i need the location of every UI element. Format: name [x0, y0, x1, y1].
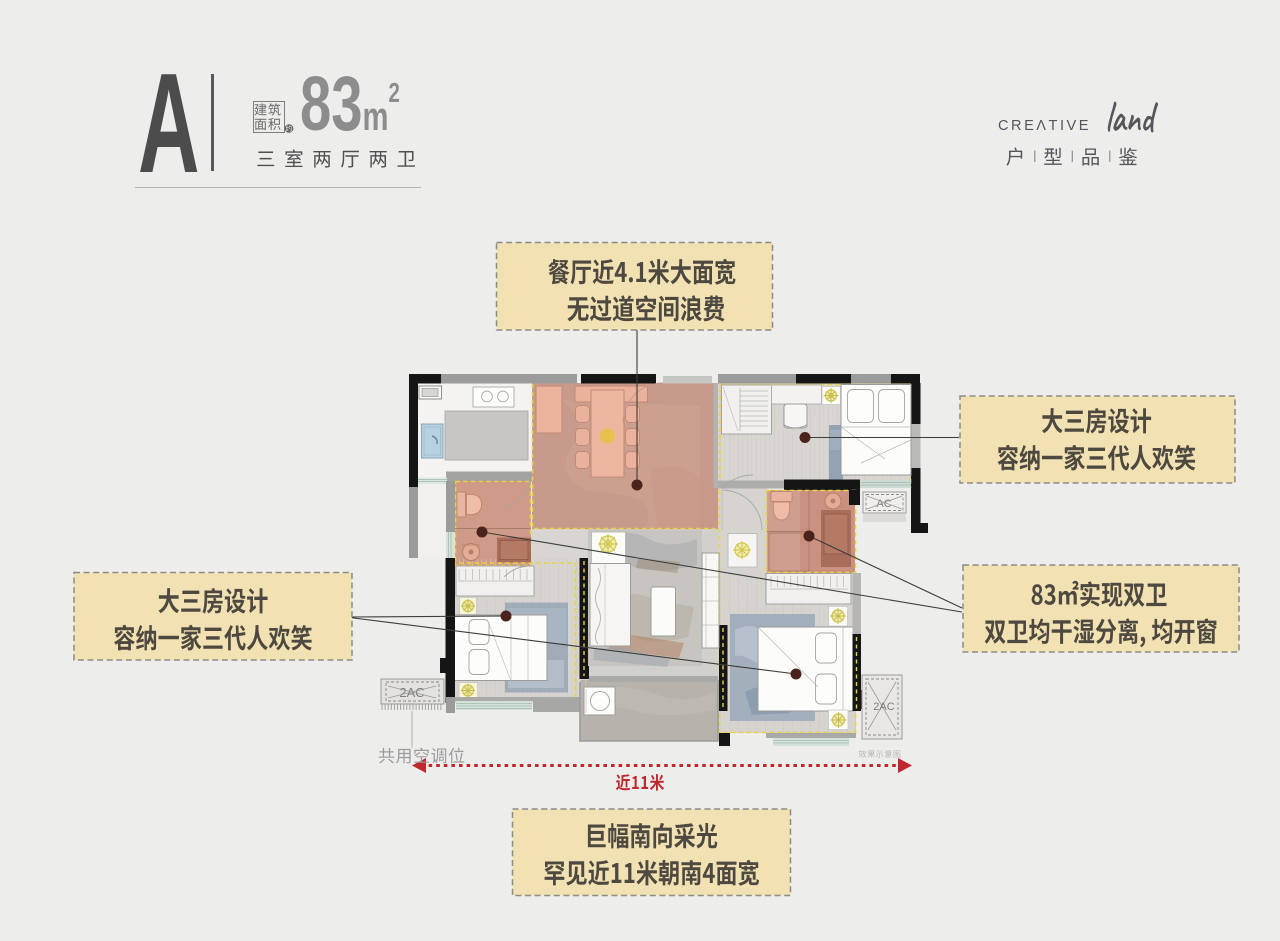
svg-text:2AC: 2AC	[873, 701, 894, 713]
svg-text:2AC: 2AC	[399, 685, 424, 700]
svg-text:CREΛTIVE: CREΛTIVE	[998, 118, 1091, 134]
